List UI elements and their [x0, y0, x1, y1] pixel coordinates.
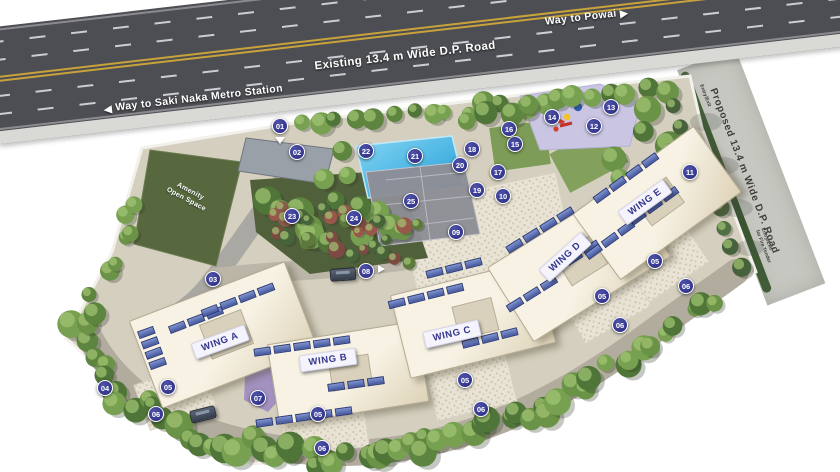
- map-marker-08: 08: [358, 263, 374, 279]
- map-marker-06: 06: [314, 440, 330, 456]
- map-marker-06: 06: [678, 278, 694, 294]
- map-marker-25: 25: [403, 193, 419, 209]
- map-marker-06: 06: [148, 406, 164, 422]
- map-marker-03: 03: [205, 271, 221, 287]
- map-marker-24: 24: [346, 210, 362, 226]
- map-marker-06: 06: [612, 317, 628, 333]
- map-marker-06: 06: [473, 401, 489, 417]
- map-marker-09: 09: [448, 224, 464, 240]
- marker-arrow-right-icon: [378, 265, 385, 273]
- map-marker-02: 02: [289, 144, 305, 160]
- map-marker-11: 11: [682, 164, 698, 180]
- map-marker-12: 12: [586, 118, 602, 134]
- map-marker-05: 05: [457, 372, 473, 388]
- map-marker-19: 19: [469, 182, 485, 198]
- masterplan-image: Existing 13.4 m Wide D.P. Road Way to Po…: [0, 0, 840, 472]
- map-marker-20: 20: [452, 157, 468, 173]
- map-marker-04: 04: [97, 380, 113, 396]
- marker-arrow-down-icon: [275, 137, 285, 144]
- map-marker-07: 07: [250, 390, 266, 406]
- map-marker-05: 05: [647, 253, 663, 269]
- map-marker-05: 05: [594, 288, 610, 304]
- car-icon: [330, 267, 357, 282]
- map-marker-21: 21: [407, 148, 423, 164]
- map-marker-16: 16: [501, 121, 517, 137]
- map-marker-13: 13: [603, 99, 619, 115]
- map-marker-05: 05: [310, 406, 326, 422]
- map-marker-22: 22: [358, 143, 374, 159]
- map-marker-15: 15: [507, 136, 523, 152]
- map-marker-01: 01: [272, 118, 288, 134]
- map-marker-23: 23: [284, 208, 300, 224]
- map-marker-18: 18: [464, 141, 480, 157]
- map-marker-10: 10: [495, 188, 511, 204]
- map-marker-05: 05: [160, 379, 176, 395]
- map-marker-17: 17: [490, 164, 506, 180]
- map-marker-14: 14: [544, 109, 560, 125]
